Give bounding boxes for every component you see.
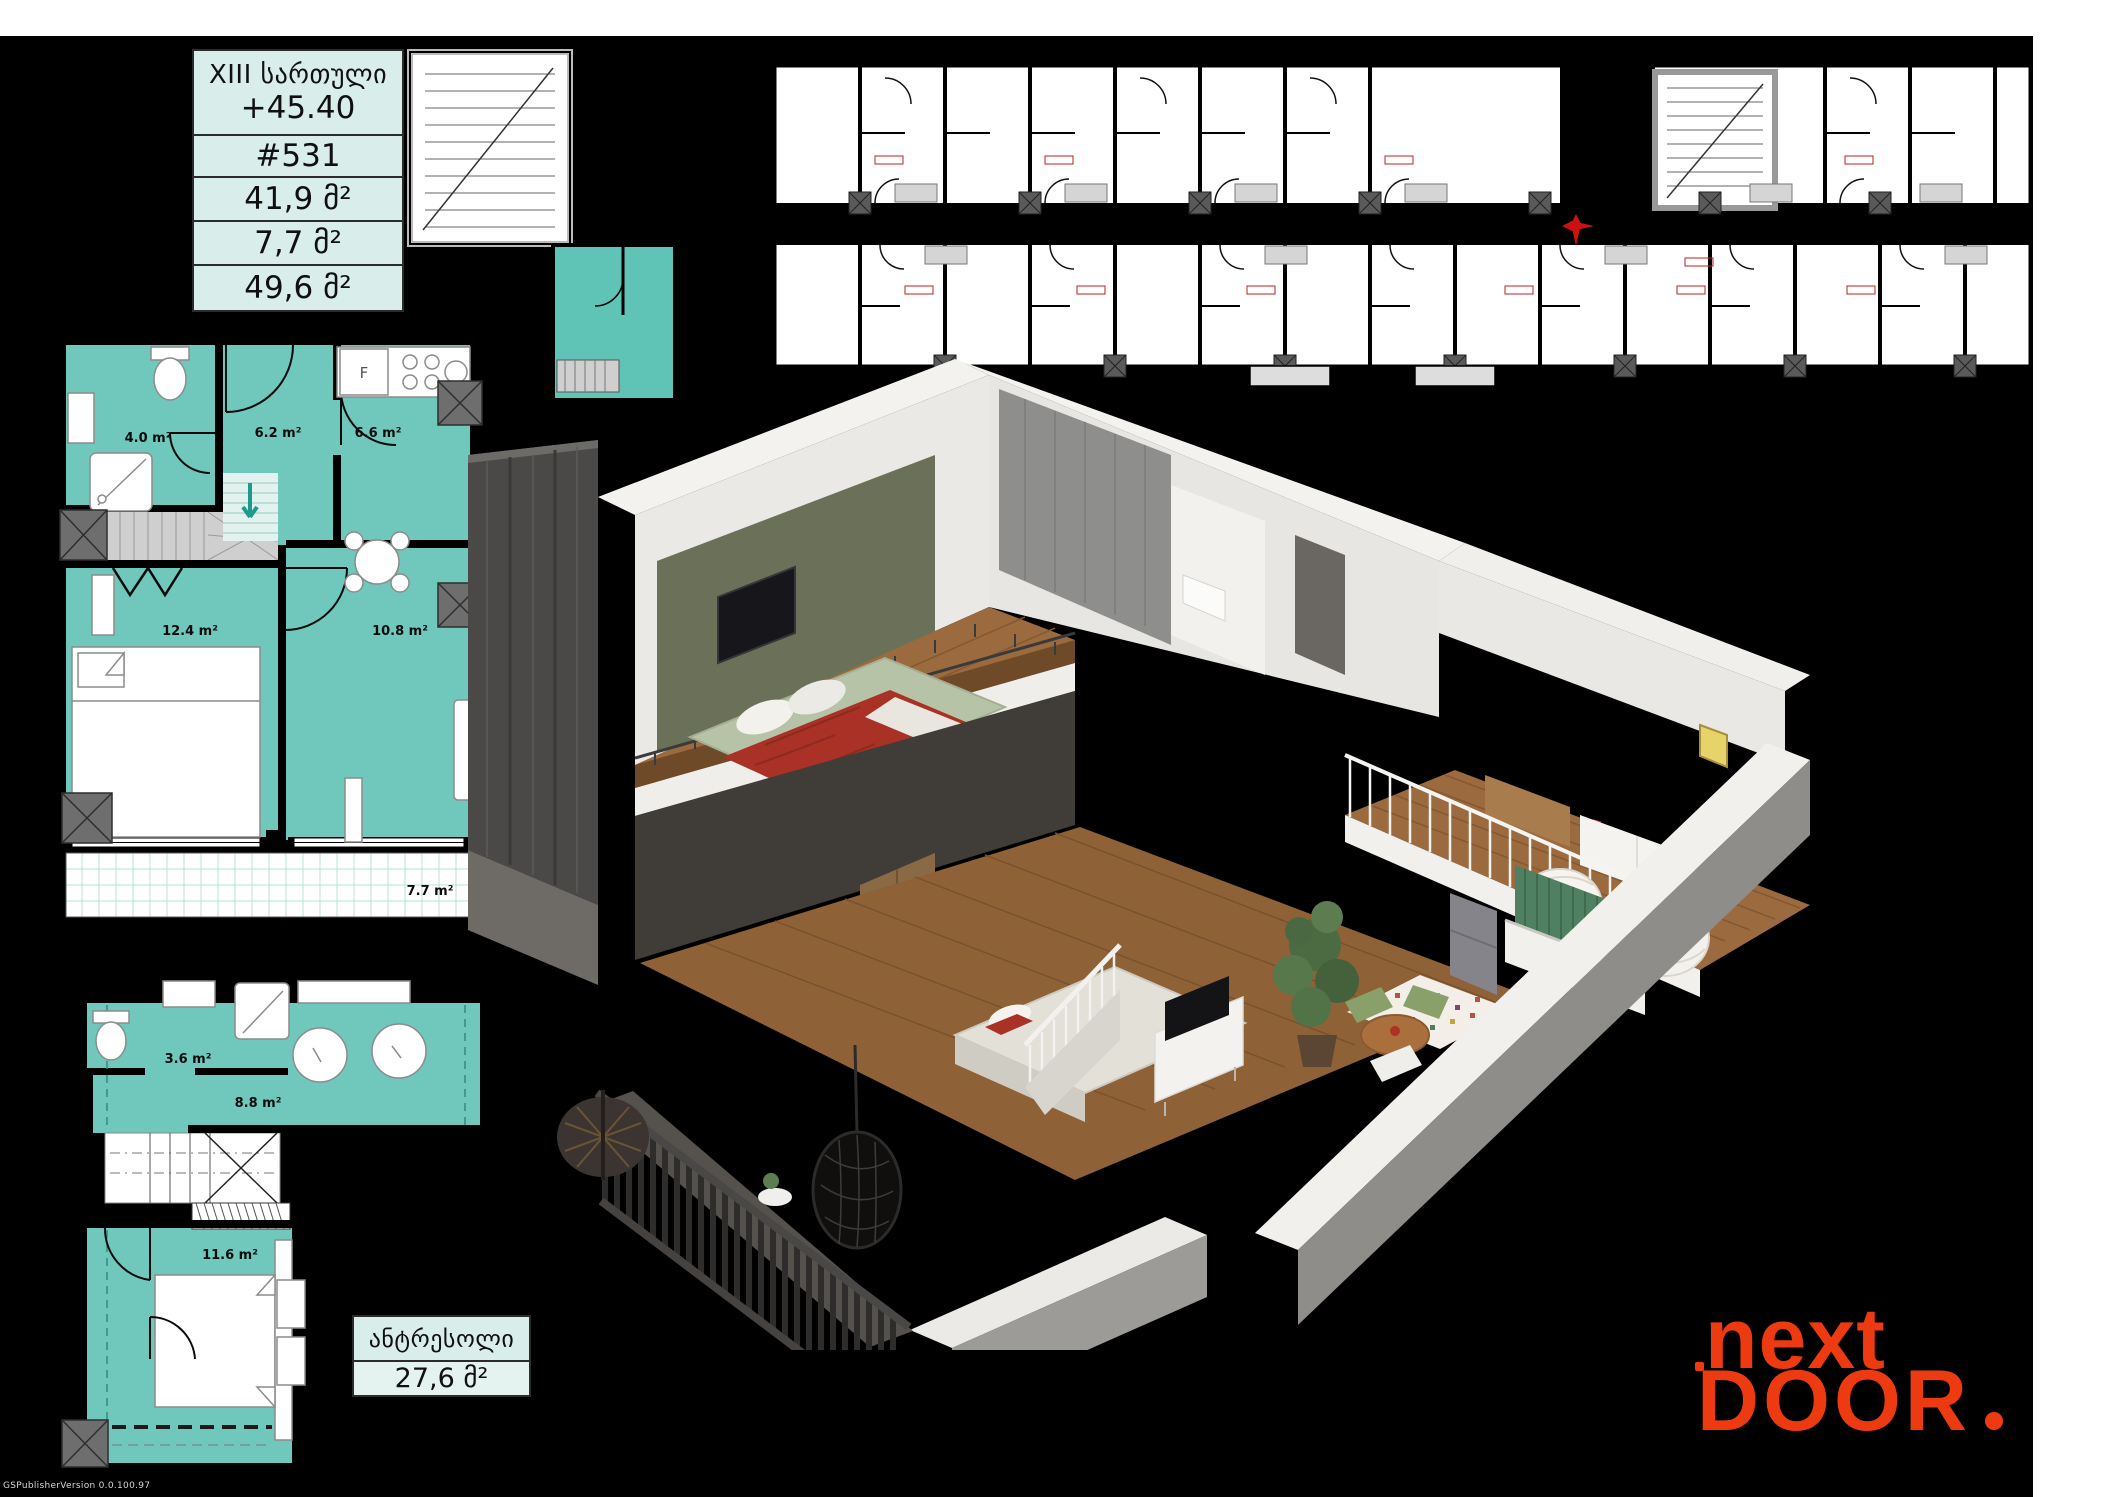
- area-living: 41,9 მ²: [194, 178, 402, 222]
- room-label-living: 10.8 m²: [372, 624, 428, 639]
- page: XIII სართული +45.40 #531 41,9 მ² 7,7 მ² …: [0, 0, 2117, 1497]
- render-balcony-table: [758, 1188, 792, 1206]
- apartment-3d-render: [465, 345, 1815, 1350]
- room-label-bath: 4.0 m²: [125, 431, 172, 446]
- render-right-wall: [1439, 543, 1810, 767]
- room-label-mezz-bath: 3.6 m²: [165, 1052, 212, 1067]
- mezzanine-area: 27,6 მ²: [354, 1362, 529, 1395]
- area-balcony: 7,7 მ²: [194, 222, 402, 266]
- unit-number: #531: [194, 136, 402, 178]
- render-balcony: [557, 1045, 913, 1350]
- room-label-mezz-hall: 8.8 m²: [235, 1096, 282, 1111]
- floor-label: XIII სართული: [209, 60, 387, 90]
- fridge-label: F: [360, 364, 369, 382]
- logo-period-icon: [1985, 1412, 2003, 1430]
- unit-floor-plan: 4.0 m² 6.2 m² 6.6 m² 12.4 m² 10.8 m² 7.7…: [58, 335, 483, 935]
- room-label-balcony: 7.7 m²: [407, 884, 454, 899]
- room-label-hall: 6.2 m²: [255, 426, 302, 441]
- render-bath-door: [1295, 535, 1345, 675]
- elevation-value: +45.40: [241, 90, 356, 126]
- mezz-column: [62, 1420, 108, 1467]
- render-left-wall: [468, 440, 598, 985]
- mezz-stairs: [105, 1133, 290, 1229]
- room-label-mezz-bedroom: 11.6 m²: [202, 1248, 258, 1263]
- nextdoor-logo[interactable]: next DOOR: [1697, 1316, 2003, 1432]
- logo-line2: DOOR: [1697, 1372, 2003, 1430]
- unit-info-table: XIII სართული +45.40 #531 41,9 მ² 7,7 მ² …: [192, 49, 404, 312]
- publisher-watermark: GSPublisherVersion 0.0.100.97: [3, 1481, 150, 1491]
- keyplan-band: [775, 66, 2030, 386]
- area-total: 49,6 მ²: [194, 266, 402, 310]
- room-label-kitchen: 6.6 m²: [355, 426, 402, 441]
- render-front-left-wall: [910, 1217, 1207, 1350]
- room-label-bedroom: 12.4 m²: [162, 624, 218, 639]
- info-row-floor: XIII სართული +45.40: [194, 51, 402, 136]
- keyplan-stair-tower: [410, 52, 570, 244]
